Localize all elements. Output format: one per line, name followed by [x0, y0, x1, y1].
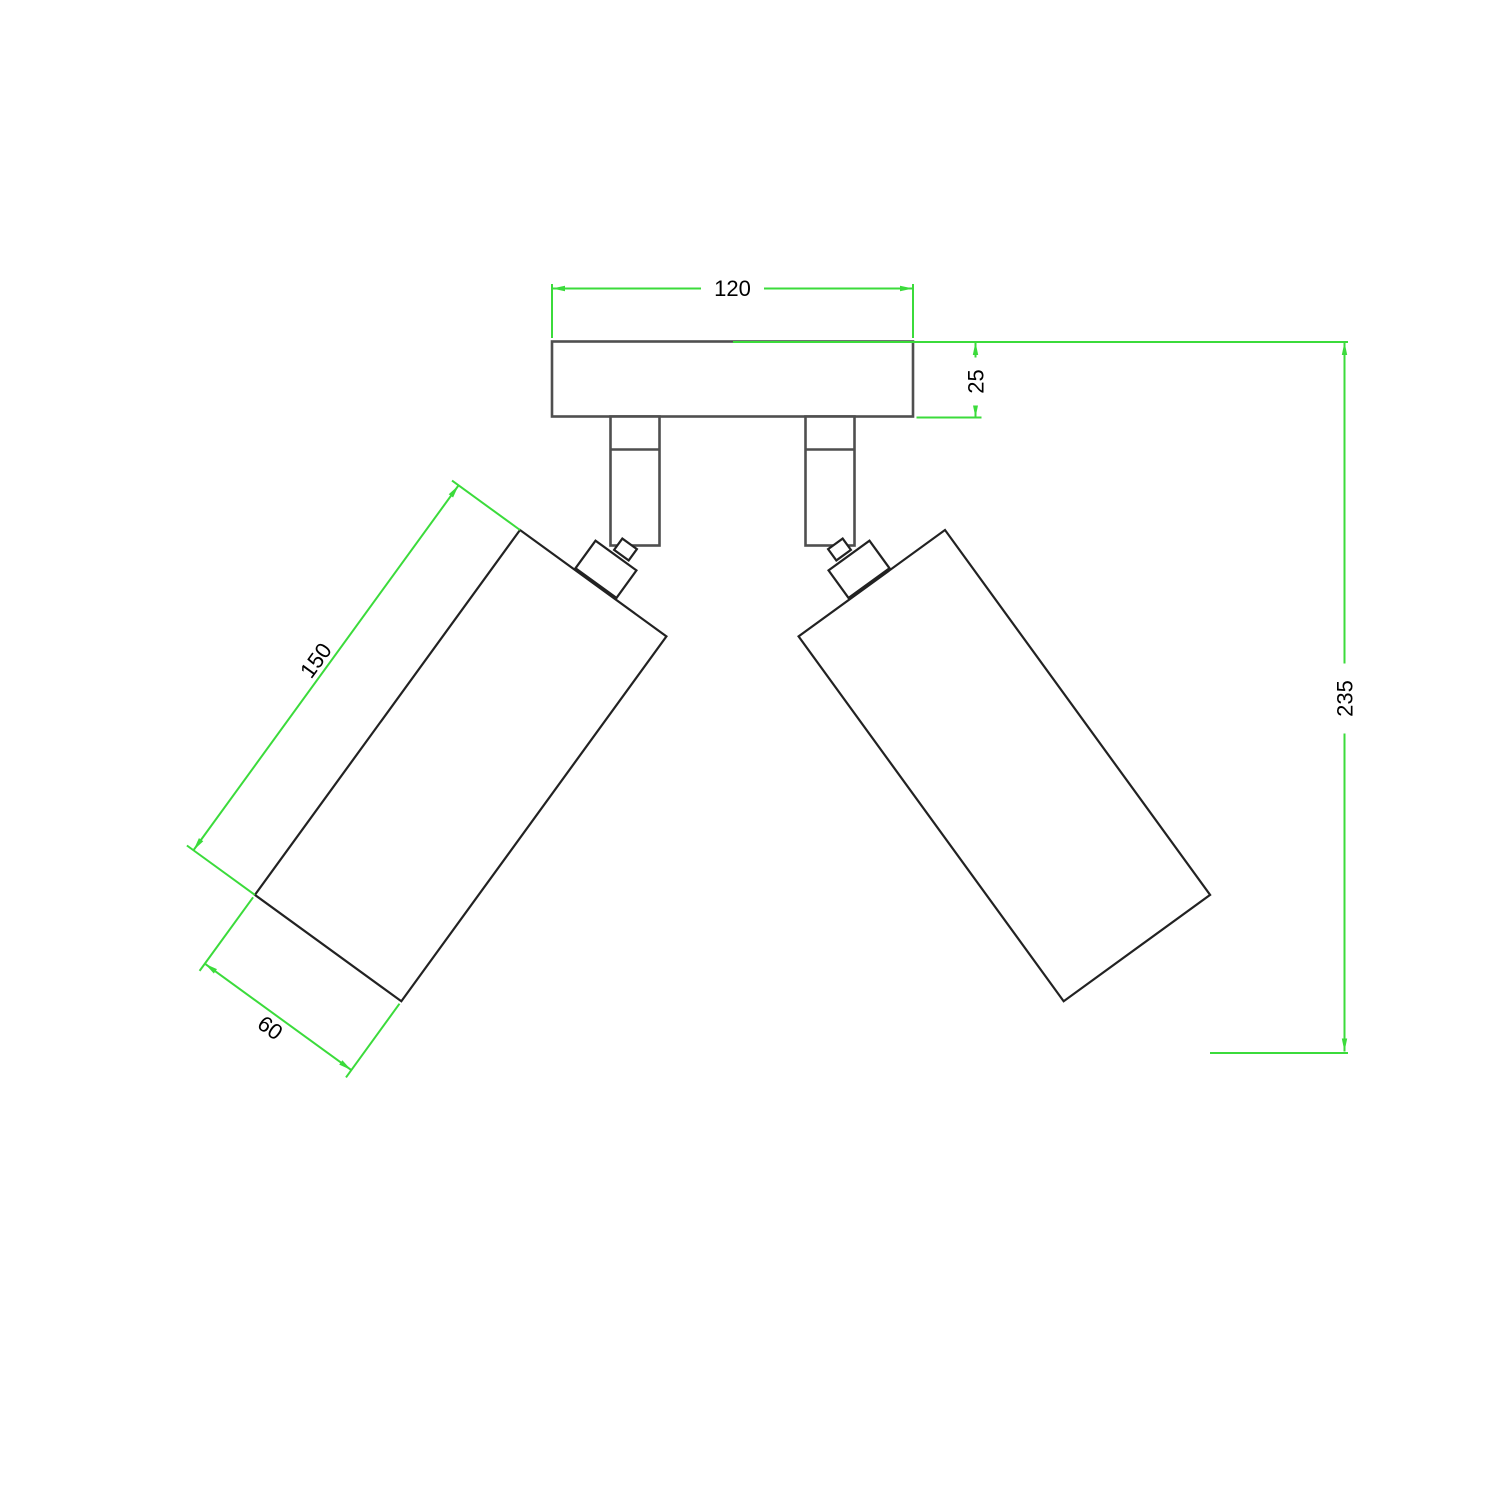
dim-label-group-canopy-thickness: 25	[964, 358, 989, 406]
dim-label-spotlight-length: 150	[295, 638, 337, 682]
dim-label-canopy-width: 120	[714, 276, 751, 301]
fixture-outline	[255, 342, 1210, 1002]
ext-line-spotlight-diameter-far	[346, 1004, 400, 1078]
ext-line-spotlight-length-far	[187, 846, 255, 895]
right-stem	[806, 417, 855, 546]
spotlight-dimension-drawing: 120 25 235 150 60	[0, 0, 1500, 1500]
mounting-plate	[552, 342, 913, 417]
technical-drawing-page: 120 25 235 150 60	[0, 0, 1500, 1500]
ext-line-spotlight-diameter-near	[200, 897, 254, 971]
dim-label-spotlight-diameter: 60	[253, 1011, 288, 1046]
dim-label-overall-height: 235	[1333, 680, 1358, 717]
left-stem	[611, 417, 660, 546]
ext-line-spotlight-length-near	[452, 481, 520, 530]
dim-label-canopy-thickness: 25	[964, 369, 989, 393]
dim-label-group-overall-height: 235	[1333, 664, 1358, 734]
dim-group-spotlight-diameter: 60	[190, 964, 352, 1091]
dim-line-spotlight-diameter	[205, 964, 351, 1070]
right-spotlight-body	[799, 530, 1211, 1001]
left-spotlight-body	[255, 530, 667, 1001]
